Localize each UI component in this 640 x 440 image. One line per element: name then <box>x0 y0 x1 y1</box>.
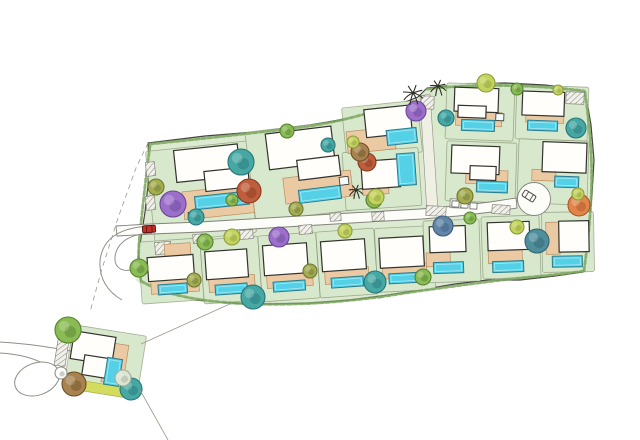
house-footprint <box>559 221 590 253</box>
tree-apple <box>464 212 476 224</box>
driveway-hatch <box>145 196 155 211</box>
tree-highlight <box>569 121 577 129</box>
tree-highlight <box>480 77 487 84</box>
lot-south-4 <box>320 239 369 289</box>
tree-lime <box>510 220 524 234</box>
house-footprint <box>470 166 496 181</box>
tree-apple <box>130 259 148 277</box>
house-footprint <box>320 239 366 272</box>
driveway-hatch <box>145 162 155 177</box>
house-footprint <box>379 236 425 268</box>
tree-highlight <box>59 321 69 331</box>
tree-apple <box>511 83 523 95</box>
tree-purple <box>406 101 426 121</box>
tree-highlight <box>349 138 354 143</box>
tree-highlight <box>164 195 174 205</box>
palm-trunk <box>437 85 440 88</box>
tree-highlight <box>66 376 76 386</box>
swimming-pool <box>331 276 364 288</box>
swimming-pool <box>527 120 557 131</box>
tree-brick <box>237 179 261 203</box>
driveway-hatch <box>372 212 384 222</box>
tree-apple <box>415 269 431 285</box>
tree-olive <box>303 264 317 278</box>
palm-frond <box>403 92 413 93</box>
tree-lime <box>338 224 352 238</box>
tree-highlight <box>323 140 329 146</box>
tree-lime <box>224 229 240 245</box>
tree-purple <box>269 227 289 247</box>
masterplan-drawing <box>0 0 640 440</box>
palm-trunk <box>412 92 415 95</box>
tree-slate <box>525 229 549 253</box>
tree-highlight <box>232 153 242 163</box>
tree-olive <box>289 202 303 216</box>
parking-space <box>452 201 459 207</box>
tree-highlight <box>459 190 465 196</box>
tree-highlight <box>190 211 196 217</box>
tree-apple <box>226 194 238 206</box>
tree-teal <box>228 149 254 175</box>
driveway-hatch <box>566 92 584 105</box>
tree-apple <box>280 124 294 138</box>
tree-highlight <box>574 190 579 195</box>
tree-teal <box>241 285 265 309</box>
tree-highlight <box>245 289 255 299</box>
tree-lime <box>572 188 584 200</box>
spa-tub <box>339 176 349 185</box>
driveway-hatch <box>426 206 446 217</box>
parking-space <box>470 203 477 209</box>
lot-ne-row1-a <box>453 87 504 132</box>
tree-highlight <box>466 214 471 219</box>
house-footprint <box>262 243 308 276</box>
tree-highlight <box>291 204 297 210</box>
tree-highlight <box>57 369 62 374</box>
tree-highlight <box>367 274 376 283</box>
tree-highlight <box>226 231 232 237</box>
tree-highlight <box>282 126 288 132</box>
tree-lime <box>553 85 563 95</box>
tree-highlight <box>340 226 346 232</box>
site-plan-canvas <box>0 0 640 440</box>
tree-highlight <box>370 191 376 197</box>
tree-lime <box>477 74 495 92</box>
tree-apple <box>55 317 81 343</box>
tree-teal <box>188 209 204 225</box>
boundary-line <box>141 303 232 344</box>
tree-teal <box>364 271 386 293</box>
tree-lime <box>347 136 359 148</box>
tree-purple <box>160 191 186 217</box>
tree-olive <box>187 273 201 287</box>
tree-highlight <box>272 230 280 238</box>
tree-highlight <box>513 85 518 90</box>
tree-highlight <box>117 372 123 378</box>
tree-highlight <box>440 112 446 118</box>
driveway-hatch <box>492 205 510 215</box>
tree-teal <box>438 110 454 126</box>
tree-highlight <box>555 87 559 91</box>
tree-highlight <box>512 222 518 228</box>
spa-tub <box>496 114 504 121</box>
house-footprint <box>205 249 249 280</box>
tree-highlight <box>199 236 205 242</box>
tree-highlight <box>241 183 251 193</box>
tree-lime <box>368 189 384 205</box>
tree-olive <box>457 188 473 204</box>
tree-highlight <box>189 275 195 281</box>
tree-highlight <box>305 266 311 272</box>
tree-teal <box>321 138 335 152</box>
palm-trunk <box>355 189 358 192</box>
car <box>142 225 155 233</box>
tree-highlight <box>150 181 156 187</box>
tree-apple <box>197 234 213 250</box>
tree-highlight <box>133 262 140 269</box>
tree-highlight <box>417 271 423 277</box>
tree-highlight <box>436 219 444 227</box>
tree-pale <box>115 370 131 386</box>
boundary-line <box>140 390 168 440</box>
tree-teal <box>566 118 586 138</box>
tree-highlight <box>409 104 417 112</box>
house-footprint <box>458 105 486 118</box>
tree-slateblue <box>433 216 453 236</box>
swimming-pool <box>158 283 188 295</box>
house-footprint <box>542 142 587 174</box>
tree-highlight <box>228 196 233 201</box>
tree-olive <box>148 179 164 195</box>
car-body <box>142 225 155 233</box>
house-footprint <box>297 155 341 180</box>
driveway-hatch <box>240 230 254 240</box>
tree-highlight <box>529 233 539 243</box>
driveway-hatch <box>299 225 313 235</box>
tree-whiteo <box>55 367 67 379</box>
driveway-hatch <box>330 213 341 222</box>
swimming-pool <box>273 280 306 292</box>
